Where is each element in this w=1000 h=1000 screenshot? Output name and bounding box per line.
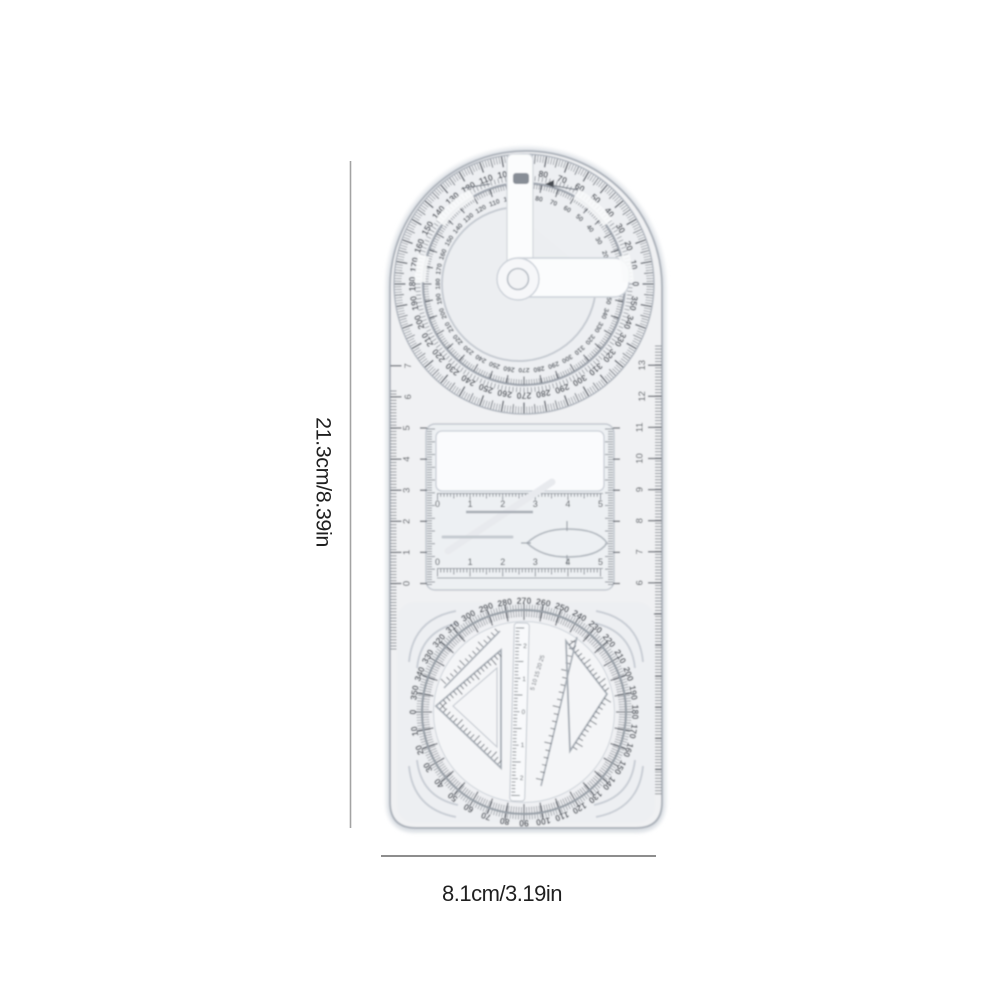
svg-text:10: 10 <box>635 453 646 464</box>
svg-text:11: 11 <box>635 422 646 432</box>
svg-text:5: 5 <box>402 425 413 430</box>
svg-text:7: 7 <box>403 363 414 368</box>
svg-text:80: 80 <box>538 168 549 180</box>
svg-text:4: 4 <box>565 557 570 567</box>
svg-text:3: 3 <box>533 557 538 567</box>
svg-text:2: 2 <box>500 499 505 509</box>
svg-text:8: 8 <box>635 518 646 523</box>
svg-text:0: 0 <box>521 709 525 716</box>
svg-text:80: 80 <box>535 195 544 203</box>
svg-text:2: 2 <box>500 557 505 567</box>
svg-text:6: 6 <box>635 580 646 585</box>
svg-text:0: 0 <box>435 499 440 509</box>
svg-text:13: 13 <box>637 360 648 371</box>
svg-text:7: 7 <box>635 549 646 554</box>
svg-text:5: 5 <box>598 499 603 509</box>
svg-text:1: 1 <box>468 499 473 509</box>
svg-text:3: 3 <box>402 488 413 493</box>
svg-text:4: 4 <box>565 499 570 509</box>
svg-text:2: 2 <box>402 519 413 524</box>
svg-text:2: 2 <box>520 775 524 782</box>
svg-text:270: 270 <box>518 366 530 373</box>
svg-text:0: 0 <box>402 581 413 586</box>
svg-text:2: 2 <box>523 643 527 650</box>
svg-text:4: 4 <box>402 456 413 461</box>
svg-text:1: 1 <box>468 557 473 567</box>
svg-text:6: 6 <box>403 394 414 399</box>
svg-text:21.3cm/8.39in: 21.3cm/8.39in <box>311 417 335 547</box>
svg-text:0: 0 <box>435 557 440 567</box>
svg-text:9: 9 <box>635 487 646 492</box>
svg-text:180: 180 <box>435 278 442 290</box>
svg-text:5: 5 <box>598 557 603 567</box>
svg-text:1: 1 <box>402 550 413 555</box>
svg-text:10: 10 <box>409 726 421 737</box>
svg-text:3: 3 <box>533 499 538 509</box>
svg-text:12: 12 <box>637 391 648 402</box>
svg-text:1: 1 <box>521 742 525 749</box>
svg-text:8.1cm/3.19in: 8.1cm/3.19in <box>442 881 562 906</box>
svg-text:1: 1 <box>522 676 526 683</box>
